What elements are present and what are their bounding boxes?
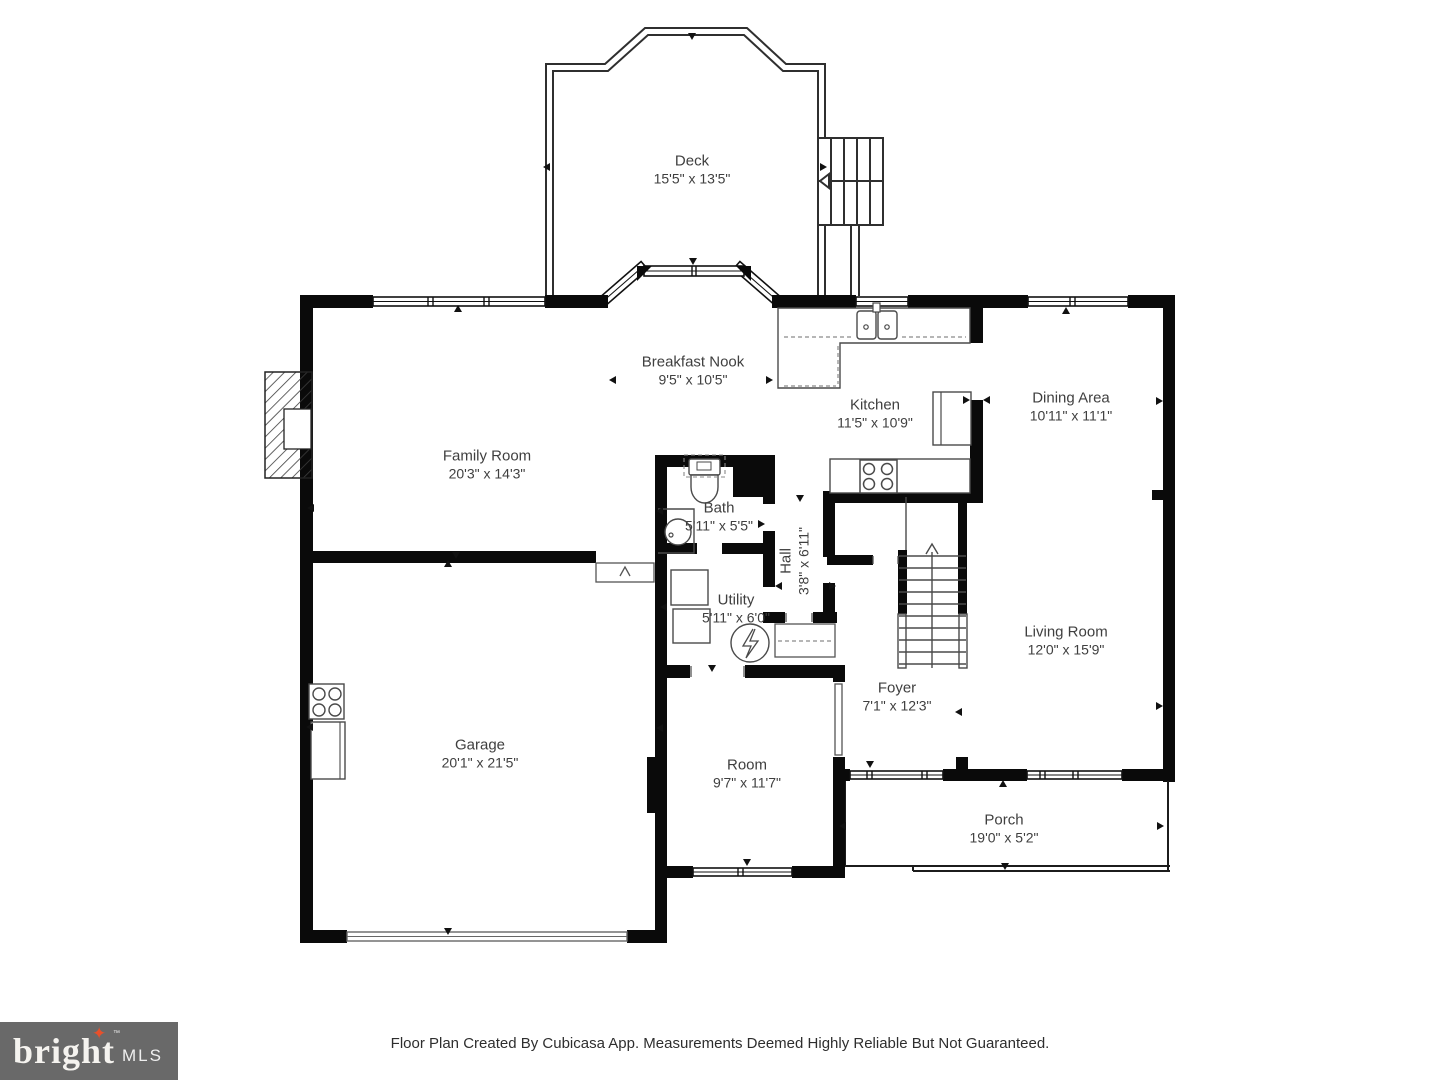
dimension-marker-icon: [955, 708, 962, 716]
windows: [373, 297, 1128, 876]
dimension-marker-icon: [452, 552, 460, 559]
dimension-marker-icon: [656, 724, 663, 732]
dimension-marker-icon: [983, 396, 990, 404]
dimension-marker-icon: [999, 780, 1007, 787]
garage-fixtures: [309, 684, 345, 779]
bath-fixtures: [658, 455, 725, 553]
dimension-marker-icon: [708, 665, 716, 672]
logo-suffix-text: MLS: [122, 1046, 163, 1066]
bay-windows: [600, 262, 780, 305]
dimension-marker-icon: [1062, 307, 1070, 314]
deck-stairs: [818, 138, 883, 225]
floor-plan-linework: [0, 0, 1440, 1080]
dimension-marker-icon: [444, 560, 452, 567]
dimension-marker-icon: [688, 33, 696, 40]
logo-trademark: ™: [113, 1030, 120, 1037]
logo-star-icon: ✦: [92, 1024, 106, 1044]
deck-railing: [546, 28, 859, 302]
utility-fixtures: [671, 570, 769, 662]
dimension-marker-icon: [839, 822, 846, 830]
dimension-marker-icon: [1157, 822, 1164, 830]
floor-plan-page: Deck15'5" x 13'5"Breakfast Nook9'5" x 10…: [0, 0, 1440, 1080]
dimension-marker-icon: [758, 520, 765, 528]
dimension-marker-icon: [689, 258, 697, 265]
disclaimer-text: Floor Plan Created By Cubicasa App. Meas…: [0, 1035, 1440, 1052]
interior-stairs: [898, 497, 967, 668]
kitchen-counters: [778, 303, 971, 493]
dimension-marker-icon: [866, 761, 874, 768]
fireplace: [265, 359, 313, 492]
brightmls-logo: bright ✦ ™ MLS: [0, 1022, 178, 1080]
foyer-closet: [775, 624, 835, 657]
dimension-marker-icon: [454, 305, 462, 312]
dimension-marker-icon: [1156, 702, 1163, 710]
dimension-marker-icon: [829, 582, 836, 590]
dimension-marker-icon: [307, 504, 314, 512]
dimension-marker-icon: [543, 163, 550, 171]
dimension-marker-icon: [743, 859, 751, 866]
dimension-marker-icon: [963, 396, 970, 404]
interior-walls: [300, 295, 983, 943]
dimension-marker-icon: [444, 928, 452, 935]
dimension-marker-icon: [766, 376, 773, 384]
exterior-walls: [300, 295, 1175, 943]
dimension-marker-icon: [1156, 397, 1163, 405]
dimension-marker-icon: [775, 582, 782, 590]
dimension-marker-icon: [660, 603, 667, 611]
dimension-marker-icon: [656, 507, 663, 515]
dimension-marker-icon: [820, 163, 827, 171]
dimension-marker-icon: [796, 495, 804, 502]
garage-door: [347, 932, 627, 941]
dimension-marker-icon: [1001, 863, 1009, 870]
dimension-marker-icon: [609, 376, 616, 384]
dimension-marker-icon: [306, 723, 313, 731]
porch-outline: [845, 781, 1170, 871]
